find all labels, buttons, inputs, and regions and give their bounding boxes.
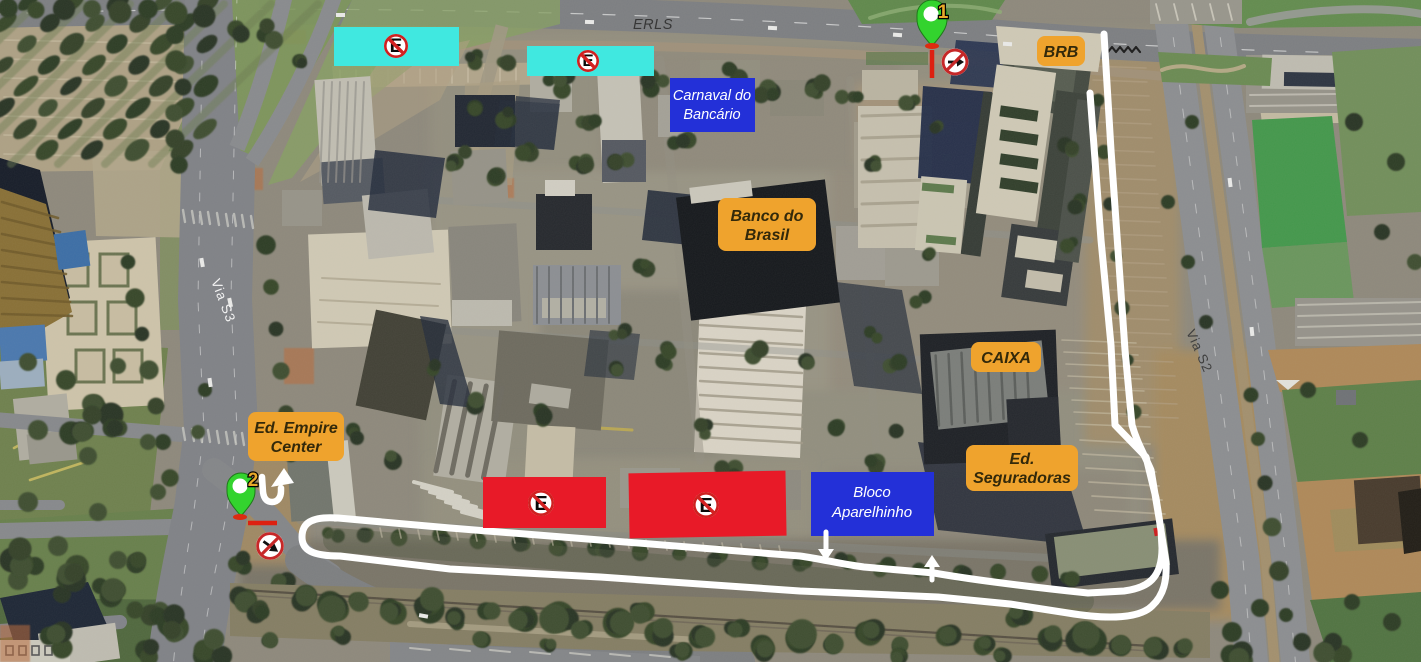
svg-text:Center: Center bbox=[271, 439, 322, 456]
svg-text:Brasil: Brasil bbox=[745, 227, 790, 244]
svg-text:Banco do: Banco do bbox=[731, 208, 804, 225]
svg-text:Aparelhinho: Aparelhinho bbox=[831, 504, 912, 521]
svg-text:Ed.: Ed. bbox=[1010, 451, 1035, 468]
svg-text:ERLS: ERLS bbox=[633, 17, 673, 33]
svg-text:2: 2 bbox=[248, 470, 259, 491]
svg-text:Bloco: Bloco bbox=[853, 484, 891, 501]
svg-text:CAIXA: CAIXA bbox=[981, 350, 1031, 367]
svg-text:Seguradoras: Seguradoras bbox=[973, 470, 1071, 487]
svg-text:Ed. Empire: Ed. Empire bbox=[254, 420, 338, 437]
svg-text:1: 1 bbox=[938, 2, 949, 23]
svg-text:Carnaval do: Carnaval do bbox=[673, 88, 751, 104]
svg-text:BRB: BRB bbox=[1044, 44, 1079, 61]
svg-text:Bancário: Bancário bbox=[683, 107, 740, 123]
